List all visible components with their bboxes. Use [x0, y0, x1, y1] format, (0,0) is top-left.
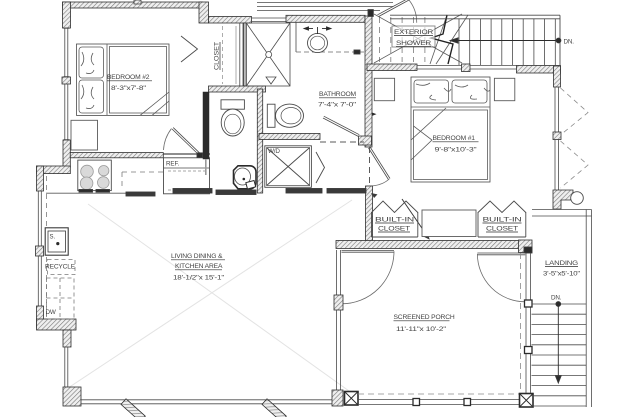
svg-text:BEDROOM #1: BEDROOM #1	[433, 135, 476, 142]
svg-text:SCREENED PORCH: SCREENED PORCH	[394, 314, 455, 321]
svg-text:DN.: DN.	[551, 295, 562, 302]
svg-text:3'-5"x5'-10": 3'-5"x5'-10"	[543, 271, 580, 278]
svg-text:LIVING DINING &: LIVING DINING &	[171, 253, 223, 260]
svg-text:8'-3"x7'-8": 8'-3"x7'-8"	[111, 85, 146, 92]
svg-text:SHOWER: SHOWER	[396, 40, 432, 47]
svg-text:EXTERIOR: EXTERIOR	[394, 29, 434, 36]
svg-text:9'-8"x10'-3": 9'-8"x10'-3"	[435, 147, 477, 154]
svg-text:S.: S.	[50, 235, 56, 241]
svg-text:11'-11"x 10'-2": 11'-11"x 10'-2"	[396, 326, 446, 333]
svg-text:CLOSET: CLOSET	[486, 226, 518, 233]
svg-text:BATHROOM: BATHROOM	[319, 91, 357, 98]
svg-text:BUILT-IN: BUILT-IN	[483, 217, 523, 224]
svg-text:W/D: W/D	[268, 148, 280, 155]
svg-text:CLOSET: CLOSET	[378, 226, 410, 233]
svg-text:DN.: DN.	[564, 39, 575, 46]
svg-text:CLOSET: CLOSET	[214, 42, 221, 70]
svg-text:KITCHEN AREA: KITCHEN AREA	[175, 263, 223, 270]
svg-text:REF.: REF.	[166, 161, 179, 168]
svg-text:7'-4"x 7'-0": 7'-4"x 7'-0"	[318, 102, 356, 109]
svg-text:RECYCLE: RECYCLE	[45, 264, 75, 271]
svg-text:LANDING: LANDING	[545, 260, 578, 267]
svg-text:DW: DW	[46, 309, 56, 316]
svg-text:BUILT-IN: BUILT-IN	[375, 217, 415, 224]
svg-text:18'-1/2"x 15'-1": 18'-1/2"x 15'-1"	[173, 275, 224, 282]
svg-text:BEDROOM #2: BEDROOM #2	[107, 74, 150, 81]
